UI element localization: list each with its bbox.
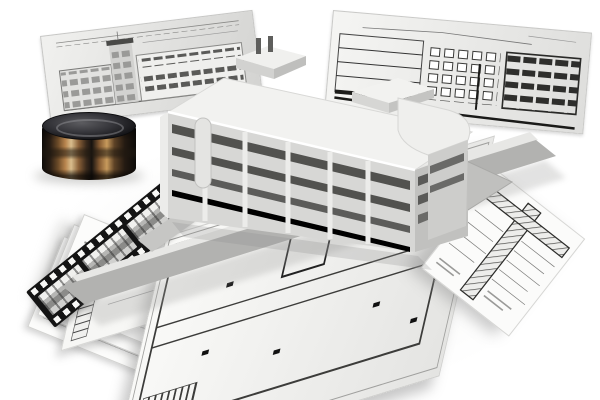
cylinder-panorama — [42, 112, 136, 180]
building-model-overlay — [0, 0, 600, 400]
roof-stack — [268, 36, 273, 52]
building-west-face — [160, 112, 168, 219]
architecture-collage — [0, 0, 600, 400]
cylinder-inner-ring — [56, 119, 124, 137]
stair-tower-cylinder — [195, 118, 211, 188]
building-model — [160, 36, 472, 270]
roof-stack — [256, 38, 261, 54]
